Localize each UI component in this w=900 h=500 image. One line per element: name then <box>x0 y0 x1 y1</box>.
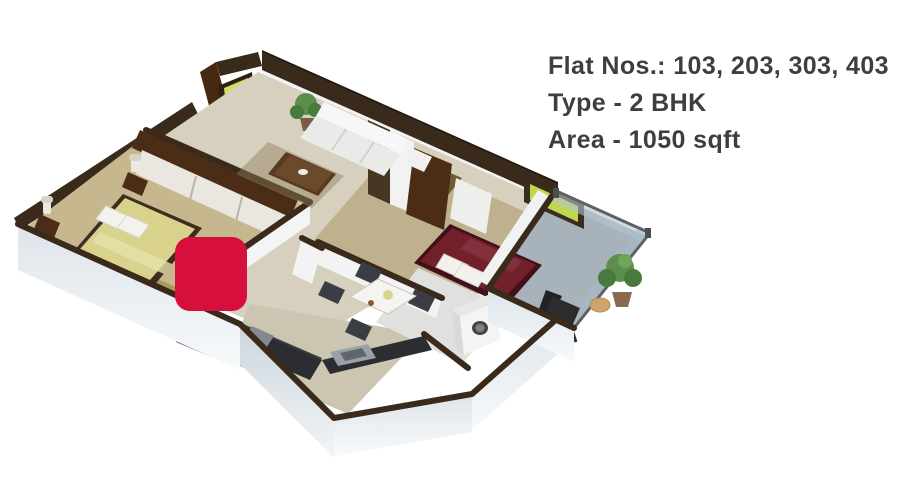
balcony-stool <box>590 298 610 312</box>
screenshot-root: Flat Nos.: 103, 203, 303, 403 Type - 2 B… <box>0 0 900 500</box>
area-text: Area - 1050 sqft <box>548 126 889 155</box>
info-panel: Flat Nos.: 103, 203, 303, 403 Type - 2 B… <box>548 52 889 155</box>
type-text: Type - 2 BHK <box>548 89 889 118</box>
flat-numbers-text: Flat Nos.: 103, 203, 303, 403 <box>548 52 889 81</box>
location-marker <box>175 237 247 311</box>
